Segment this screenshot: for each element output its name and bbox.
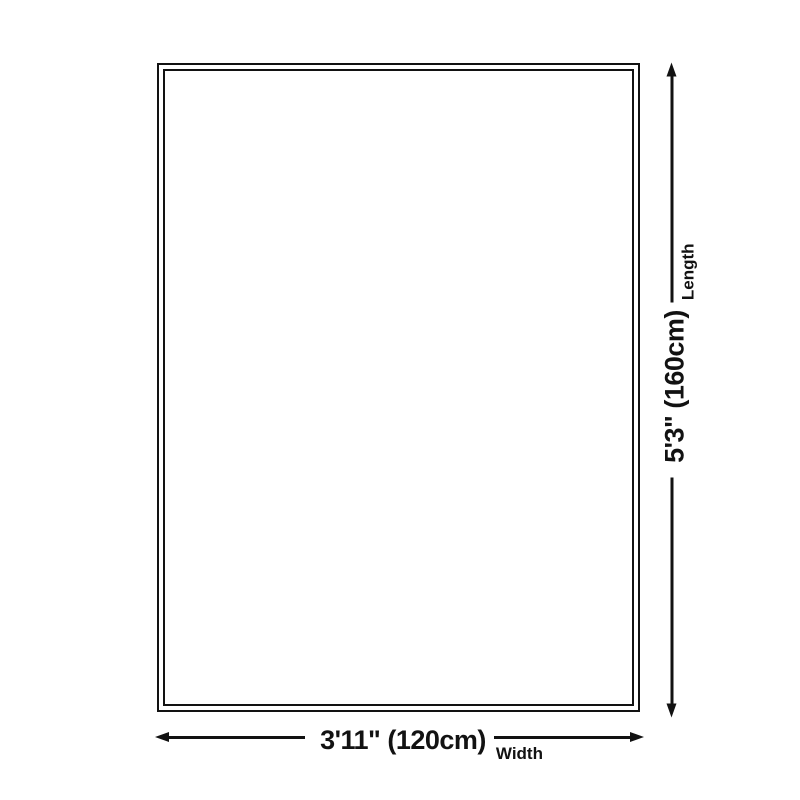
width-dimension-arrow: 3'11" (120cm) Width	[155, 715, 644, 759]
arrow-left-icon	[155, 732, 169, 742]
width-name-label: Width	[496, 745, 543, 762]
width-arrow-line-right: Width	[494, 736, 630, 739]
width-arrow-line-left	[169, 736, 305, 739]
length-arrow-line-upper: Length	[670, 77, 673, 303]
size-diagram: 3'11" (120cm) Width 5'3" (160cm) Length	[0, 0, 800, 800]
rug-inner-border	[163, 69, 634, 706]
arrow-up-icon	[667, 63, 677, 77]
arrow-down-icon	[667, 704, 677, 718]
length-name-label: Length	[679, 243, 696, 300]
length-arrow-line-lower	[670, 478, 673, 704]
length-dimension-arrow: 5'3" (160cm) Length	[650, 63, 694, 718]
rug-outline	[157, 63, 640, 712]
width-value-label: 3'11" (120cm)	[320, 727, 486, 754]
length-value-label: 5'3" (160cm)	[661, 310, 688, 463]
arrow-right-icon	[630, 732, 644, 742]
